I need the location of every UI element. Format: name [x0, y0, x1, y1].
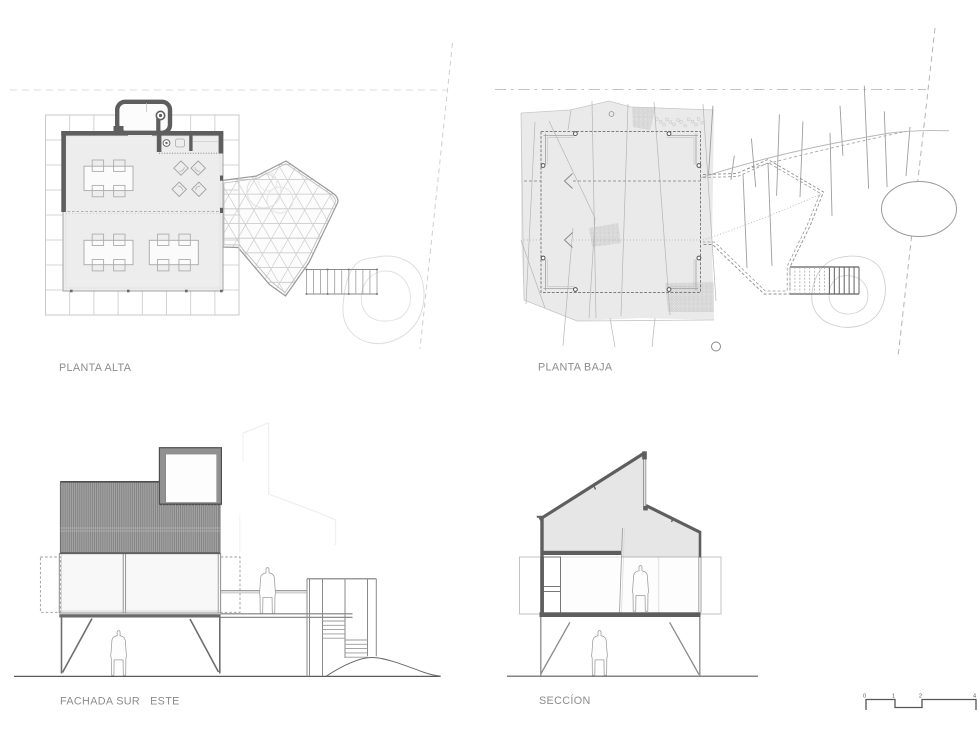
svg-text:0: 0: [863, 694, 866, 700]
svg-text:2: 2: [919, 694, 922, 700]
svg-text:PLANTA ALTA: PLANTA ALTA: [59, 362, 132, 374]
svg-text:FACHADA SUR ESTE: FACHADA SUR ESTE: [60, 696, 180, 708]
svg-text:4: 4: [973, 694, 976, 700]
svg-text:1: 1: [892, 694, 895, 700]
svg-text:PLANTA BAJA: PLANTA BAJA: [538, 362, 613, 374]
svg-text:SECCÍON: SECCÍON: [539, 694, 591, 707]
